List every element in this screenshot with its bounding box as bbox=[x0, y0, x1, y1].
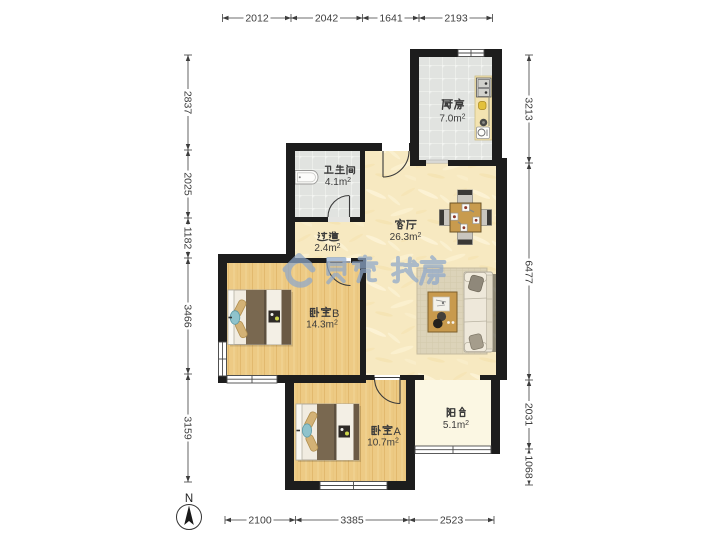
svg-text:1182: 1182 bbox=[182, 227, 194, 250]
svg-text:14.3m2: 14.3m2 bbox=[306, 320, 338, 331]
svg-text:N: N bbox=[185, 493, 193, 505]
svg-text:10.7m2: 10.7m2 bbox=[367, 438, 399, 449]
svg-text:3466: 3466 bbox=[182, 304, 194, 328]
svg-text:3213: 3213 bbox=[523, 97, 535, 121]
svg-text:2025: 2025 bbox=[182, 172, 194, 196]
svg-text:26.3m2: 26.3m2 bbox=[390, 232, 422, 243]
svg-text:1068: 1068 bbox=[523, 455, 535, 479]
svg-text:2193: 2193 bbox=[444, 13, 468, 25]
svg-text:6477: 6477 bbox=[523, 260, 535, 284]
svg-text:A: A bbox=[394, 426, 402, 438]
svg-text:1641: 1641 bbox=[379, 13, 403, 25]
svg-text:B: B bbox=[332, 308, 339, 320]
svg-text:2042: 2042 bbox=[315, 13, 339, 25]
svg-text:3385: 3385 bbox=[340, 515, 364, 527]
svg-text:2012: 2012 bbox=[245, 13, 269, 25]
svg-text:2100: 2100 bbox=[248, 515, 272, 527]
svg-text:2523: 2523 bbox=[440, 515, 464, 527]
svg-text:3159: 3159 bbox=[182, 416, 194, 440]
svg-text:2031: 2031 bbox=[523, 403, 535, 427]
svg-text:2837: 2837 bbox=[182, 91, 194, 115]
